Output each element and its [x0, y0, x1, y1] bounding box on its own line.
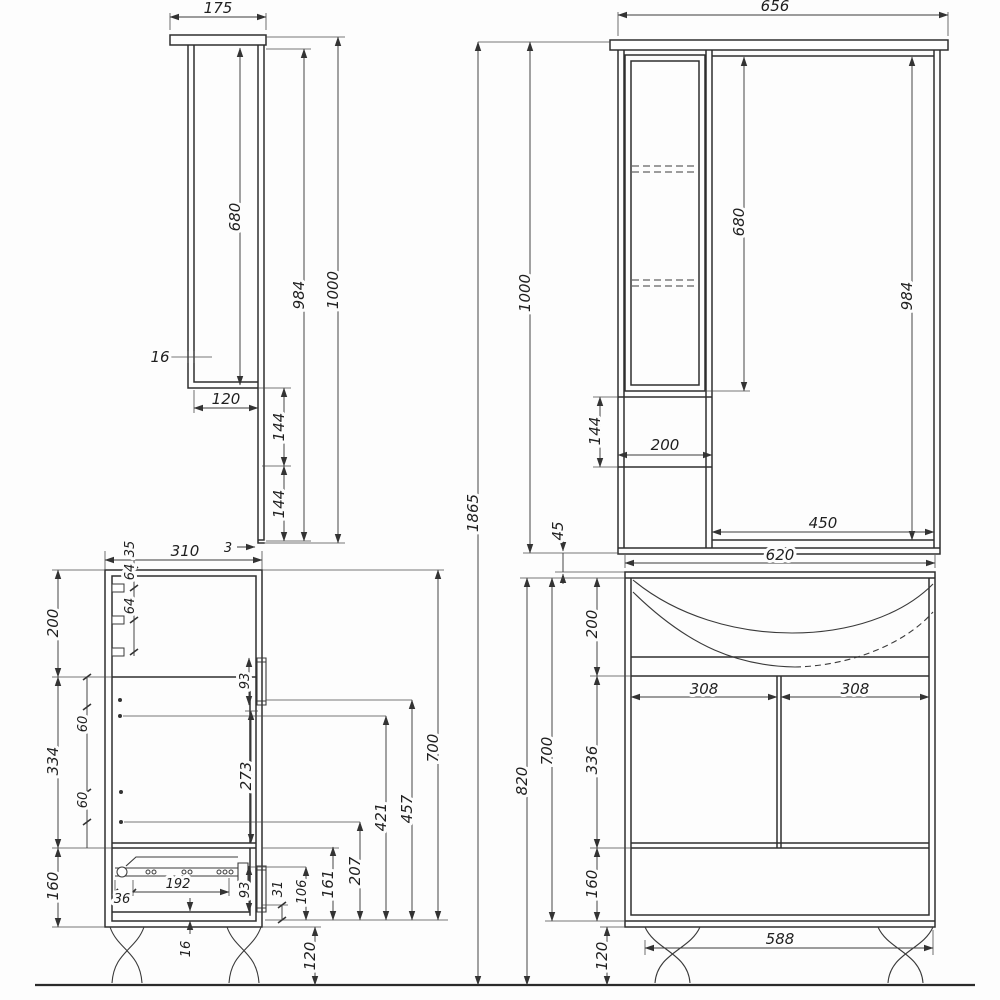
dim-mcside-height-total: 1000	[324, 271, 342, 309]
dim-vside-hinge-top: 60	[76, 716, 91, 733]
dim-overall-height: 1865	[464, 494, 482, 532]
dim-vside-leg-height: 120	[301, 942, 319, 971]
dim-mcfront-height-total: 1000	[516, 274, 534, 312]
dim-mcfront-gap: 45	[549, 521, 567, 540]
dim-vfront-box-height: 700	[538, 737, 556, 766]
dim-vside-hinge-bottom: 60	[76, 792, 91, 809]
basin-bowl-curve-hidden	[795, 612, 933, 667]
dim-mcside-mirror-edge: 3	[224, 541, 232, 556]
vanity-front-view: 620 200 336 160 700 820 308 308 588 120	[513, 546, 935, 985]
dim-vside-h106: 106	[295, 880, 310, 905]
basin-bowl-curve	[633, 592, 795, 667]
furniture-technical-drawing: 175 680 984 1000 16 120 144 144 3 656 18…	[0, 0, 1000, 1000]
drawing-sheet: 175 680 984 1000 16 120 144 144 3 656 18…	[0, 0, 1000, 1000]
dim-mcside-seg-upper: 144	[270, 413, 288, 442]
mount-tab	[112, 616, 124, 624]
dim-vside-h421: 421	[372, 803, 390, 832]
dim-mcside-seg-lower: 144	[270, 490, 288, 519]
dim-vside-h457: 457	[398, 794, 416, 823]
dim-mcfront-mirror-height: 984	[898, 282, 916, 311]
dim-mcside-panel-thickness: 16	[150, 348, 169, 366]
mirror-cabinet-front-view: 656 1865 1000 680 984 144 200 450 45	[464, 0, 948, 985]
dim-mcside-bottom-depth: 120	[212, 390, 241, 408]
hinge-mark	[119, 790, 123, 794]
mirror-cabinet-side-view: 175 680 984 1000 16 120 144 144 3	[150, 0, 345, 556]
dim-mcfront-column-width: 200	[651, 436, 680, 454]
hinge-mark	[118, 698, 122, 702]
dim-vside-tab-gap-2: 64	[123, 598, 138, 615]
dim-vside-bottom-thickness: 16	[179, 941, 194, 958]
dim-vfront-leg-height: 120	[593, 942, 611, 971]
dim-vside-top-offset: 35	[123, 541, 138, 558]
dim-vside-door-handle: 93	[238, 673, 253, 690]
dim-vside-h207: 207	[346, 856, 364, 885]
dim-mcfront-door-height: 680	[730, 208, 748, 237]
dim-vfront-width: 620	[766, 546, 795, 564]
dim-mcside-height-under-top: 984	[290, 281, 308, 310]
basin-rim-curve	[633, 580, 933, 633]
mount-tab	[112, 648, 124, 656]
dim-mcside-mirror-height: 680	[226, 203, 244, 232]
slide-wheel	[117, 867, 127, 877]
dim-mcside-width: 175	[204, 0, 233, 17]
dim-mcfront-mirror-width: 450	[809, 514, 838, 532]
dim-vside-drawer-section: 160	[44, 872, 62, 901]
dim-vside-h161: 161	[319, 870, 337, 899]
dim-vside-box-height: 700	[424, 734, 442, 763]
dim-vside-door-inner: 273	[237, 762, 255, 791]
dim-vfront-leg-span: 588	[766, 930, 795, 948]
mount-tab	[112, 584, 124, 592]
vanity-side-view: 310 35 64 64 200 60 334 60 160 93 273 31…	[44, 541, 448, 985]
dim-vfront-total-height: 820	[513, 767, 531, 796]
dim-vside-slide-offset: 36	[114, 892, 131, 907]
dim-vfront-drawer-height: 160	[583, 870, 601, 899]
dim-vside-tab-gap-1: 64	[123, 564, 138, 581]
dim-vfront-door-right: 308	[841, 680, 870, 698]
dim-mcfront-lower-section: 144	[586, 417, 604, 446]
dim-mcfront-width: 656	[761, 0, 790, 15]
dim-vfront-basin-section: 200	[583, 610, 601, 639]
hinge-mark	[118, 714, 122, 718]
dim-vfront-door-height: 336	[583, 746, 601, 775]
dim-vside-top-section: 200	[44, 609, 62, 638]
dim-vfront-door-left: 308	[690, 680, 719, 698]
dim-vside-depth: 310	[171, 542, 200, 560]
dim-vside-slide-length: 192	[166, 877, 191, 892]
dim-vside-h31: 31	[271, 881, 286, 898]
hinge-mark	[119, 820, 123, 824]
dim-vside-drawer-handle: 93	[238, 882, 253, 899]
glass-shelves-hidden-lines	[632, 166, 698, 286]
dim-vside-door-section: 334	[44, 747, 62, 776]
